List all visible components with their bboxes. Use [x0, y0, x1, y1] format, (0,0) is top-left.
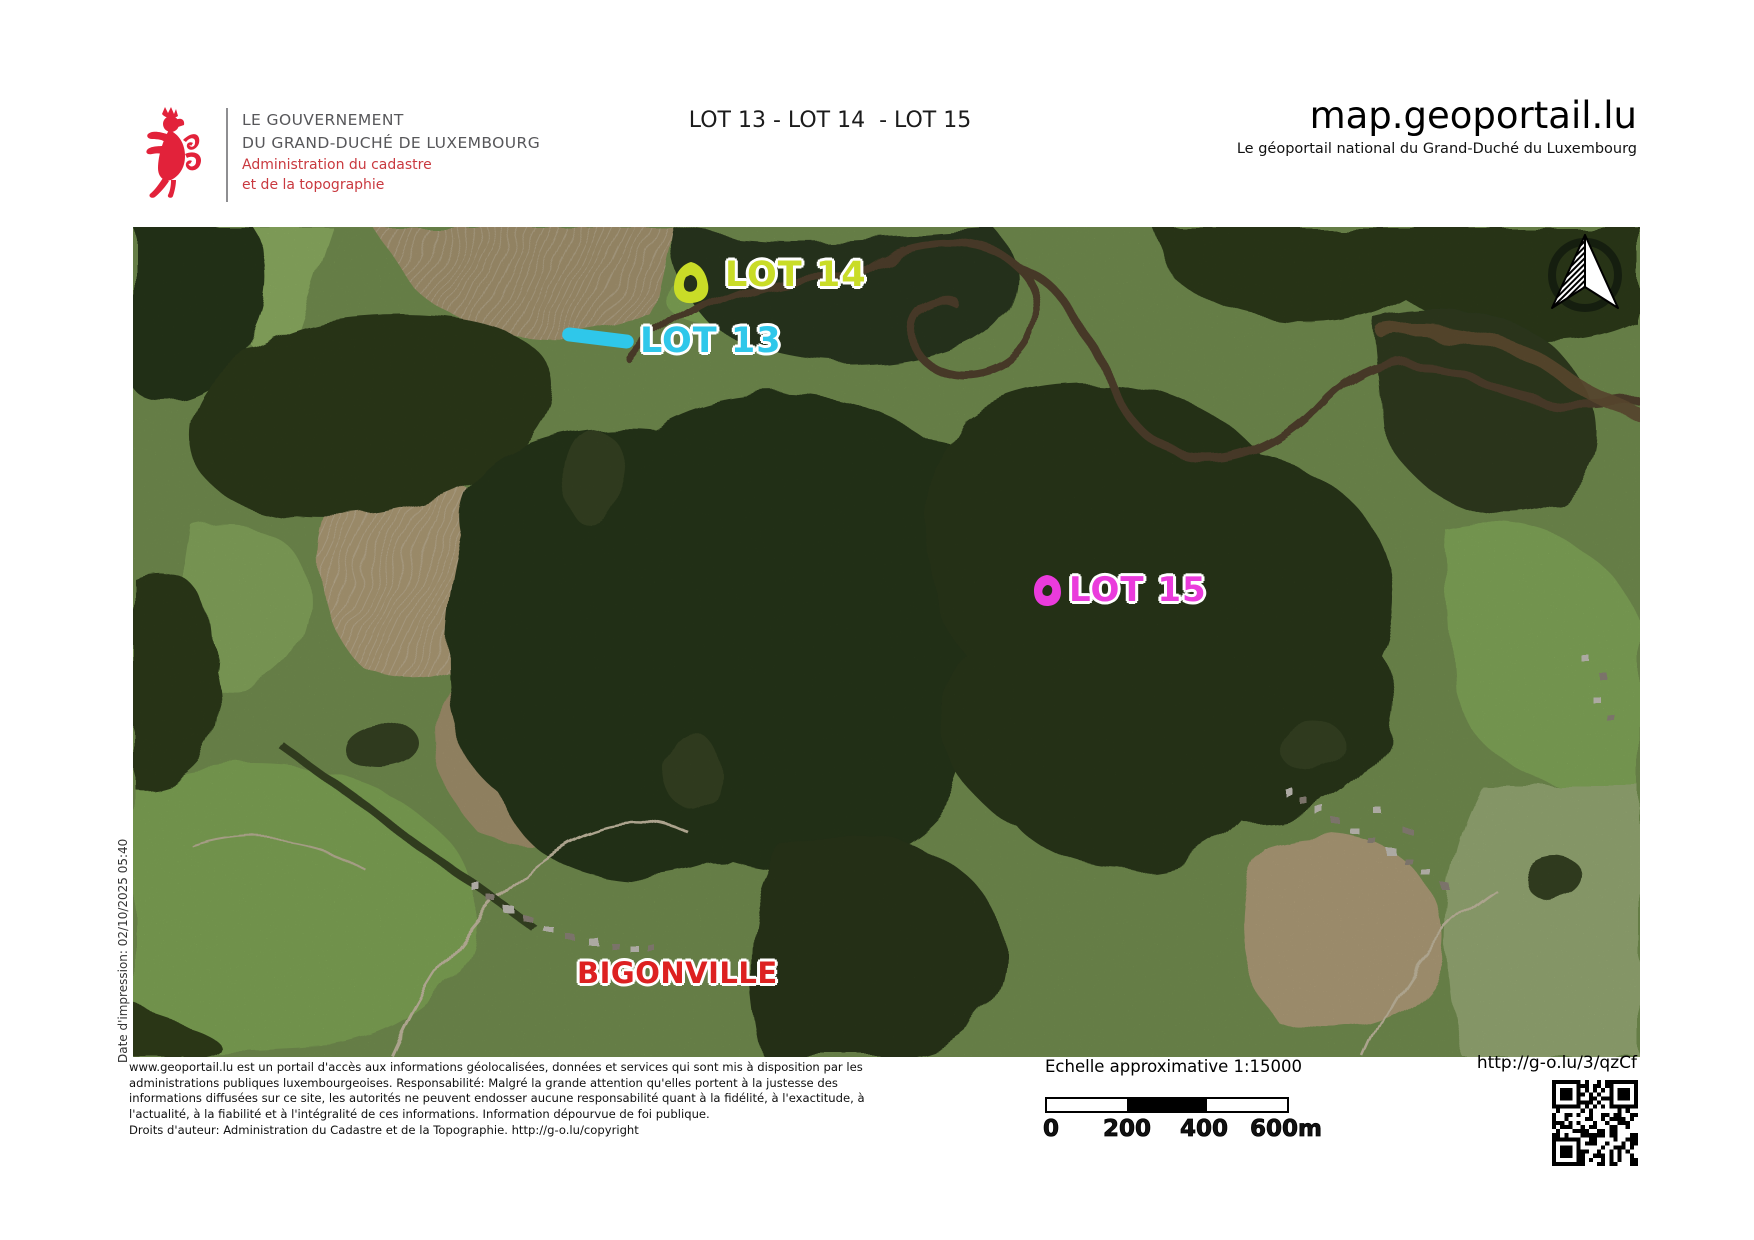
brand-title: map.geoportail.lu	[1310, 94, 1637, 137]
lot14-marker-icon	[670, 260, 712, 305]
luxembourg-lion-logo	[138, 104, 208, 198]
scale-label: Echelle approximative 1:15000	[1045, 1057, 1345, 1076]
government-text-block: LE GOUVERNEMENT DU GRAND-DUCHÉ DE LUXEMB…	[242, 113, 540, 198]
page-title: LOT 13 - LOT 14 - LOT 15	[560, 108, 1100, 133]
scale-tick-400: 400	[1180, 1116, 1228, 1142]
disclaimer-line: Droits d'auteur: Administration du Cadas…	[129, 1123, 909, 1139]
lot13-label: LOT 13	[640, 324, 782, 359]
geoportail-print-page: LE GOUVERNEMENT DU GRAND-DUCHÉ DE LUXEMB…	[0, 0, 1754, 1240]
scale-segment-black	[1127, 1099, 1207, 1111]
logo-divider	[226, 108, 228, 202]
short-url: http://g-o.lu/3/qzCf	[1477, 1053, 1637, 1073]
lot15-marker-icon	[1032, 574, 1063, 607]
scale-segment-white	[1207, 1099, 1287, 1111]
brand-subtitle: Le géoportail national du Grand-Duché du…	[1237, 141, 1637, 157]
administration-line1: Administration du cadastre	[242, 158, 540, 172]
map-canvas: LOT 14 LOT 13 LOT 15 BIGONVILLE	[133, 227, 1640, 1057]
lot15-label: LOT 15	[1069, 573, 1207, 607]
lot14-label: LOT 14	[725, 258, 867, 293]
disclaimer-line: administrations publiques luxembourgeois…	[129, 1076, 909, 1092]
disclaimer-line: l'actualité, à la fiabilité et à l'intég…	[129, 1107, 909, 1123]
aerial-imagery	[133, 227, 1640, 1057]
scale-segment-white	[1047, 1099, 1127, 1111]
government-line2: DU GRAND-DUCHÉ DE LUXEMBOURG	[242, 136, 540, 152]
qr-code-icon	[1552, 1080, 1638, 1166]
administration-line2: et de la topographie	[242, 178, 540, 192]
disclaimer-line: www.geoportail.lu est un portail d'accès…	[129, 1060, 909, 1076]
scale-tick-600: 600m	[1250, 1116, 1322, 1142]
government-line1: LE GOUVERNEMENT	[242, 113, 540, 129]
scale-ticks: 0 200 400 600m	[1045, 1116, 1345, 1148]
scale-block: Echelle approximative 1:15000 0 200 400 …	[1045, 1057, 1345, 1148]
north-arrow-icon	[1539, 229, 1631, 321]
scale-tick-200: 200	[1103, 1116, 1151, 1142]
disclaimer-line: informations diffusées sur ce site, les …	[129, 1091, 909, 1107]
scale-bar	[1045, 1097, 1289, 1113]
scale-tick-0: 0	[1043, 1116, 1059, 1142]
disclaimer-text: www.geoportail.lu est un portail d'accès…	[129, 1060, 909, 1139]
bigonville-label: BIGONVILLE	[577, 959, 778, 988]
print-date: Date d'impression: 02/10/2025 05:40	[116, 839, 130, 1063]
